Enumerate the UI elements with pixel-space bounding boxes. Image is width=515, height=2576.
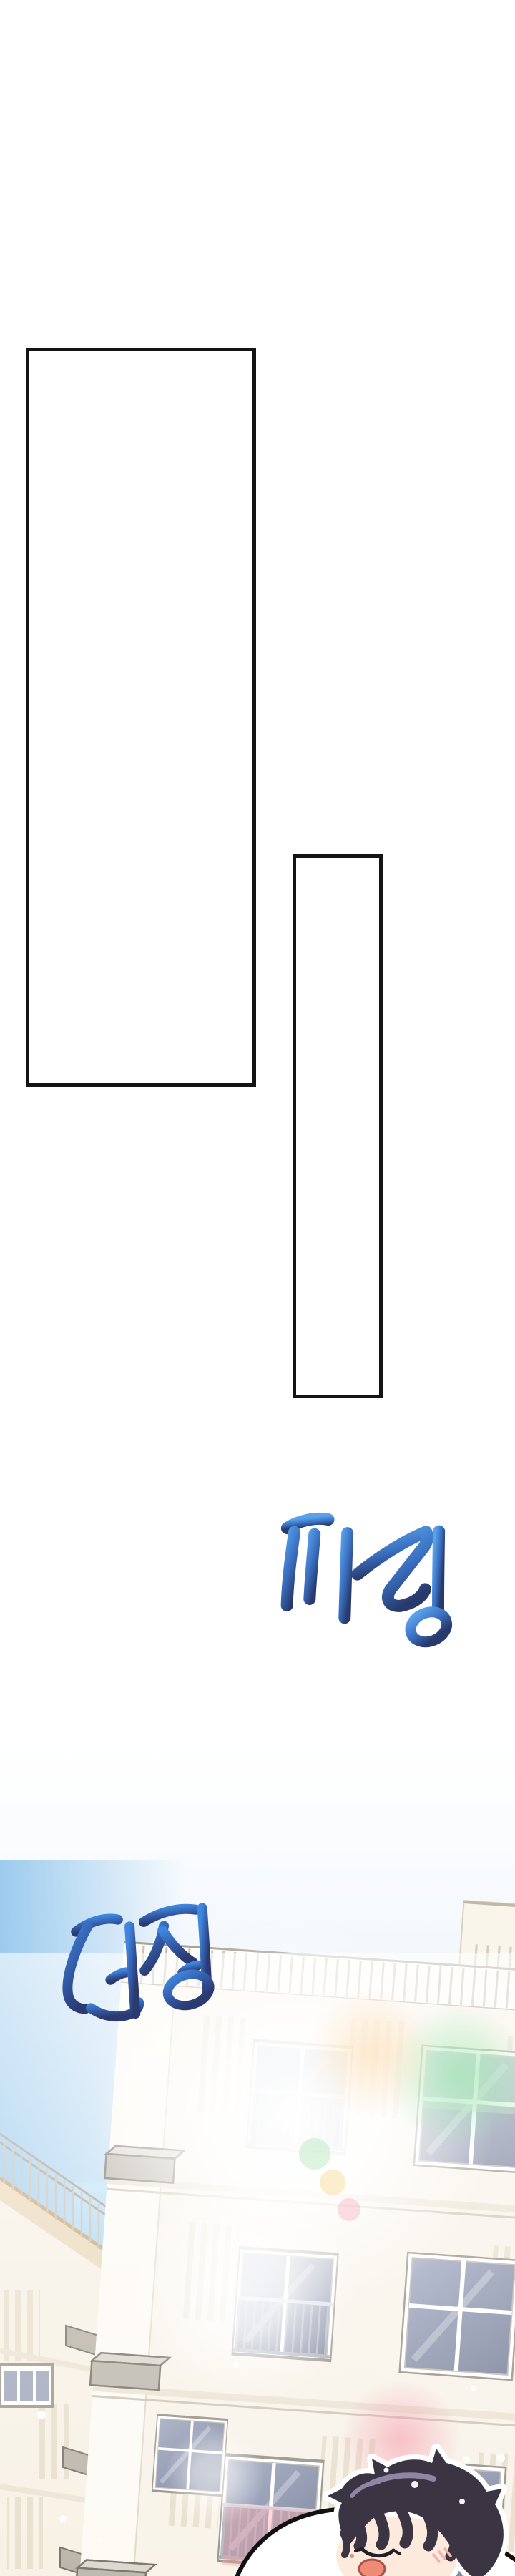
open-mouth — [359, 2560, 385, 2576]
top-white-fade — [0, 1717, 515, 1825]
building-scene-illustration — [0, 1717, 515, 2576]
empty-panel-2 — [293, 854, 383, 1398]
sfx-strokes — [284, 1514, 452, 1652]
sfx-text-deoljeong — [56, 1889, 230, 2039]
sfx-text-ddiring — [247, 1493, 475, 1669]
empty-panel-1 — [26, 348, 256, 1087]
comic-page: BACA DI MGKOMIK.ID BACA DI MGKOMIK.ID BA… — [0, 0, 515, 2576]
sfx-strokes — [67, 1908, 214, 2017]
nose-dot — [350, 2554, 354, 2558]
